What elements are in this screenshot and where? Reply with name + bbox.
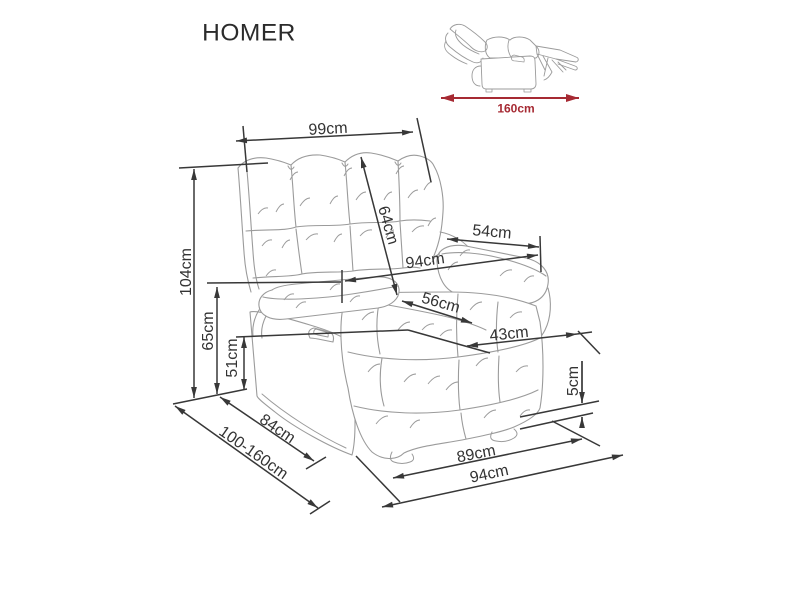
svg-text:51cm: 51cm [224, 338, 241, 377]
svg-text:65cm: 65cm [200, 311, 217, 350]
svg-text:99cm: 99cm [308, 120, 348, 139]
svg-text:5cm: 5cm [565, 366, 582, 396]
svg-text:54cm: 54cm [472, 222, 512, 242]
svg-text:HOMER: HOMER [202, 19, 296, 46]
svg-text:160cm: 160cm [497, 101, 534, 115]
svg-text:104cm: 104cm [178, 248, 195, 296]
